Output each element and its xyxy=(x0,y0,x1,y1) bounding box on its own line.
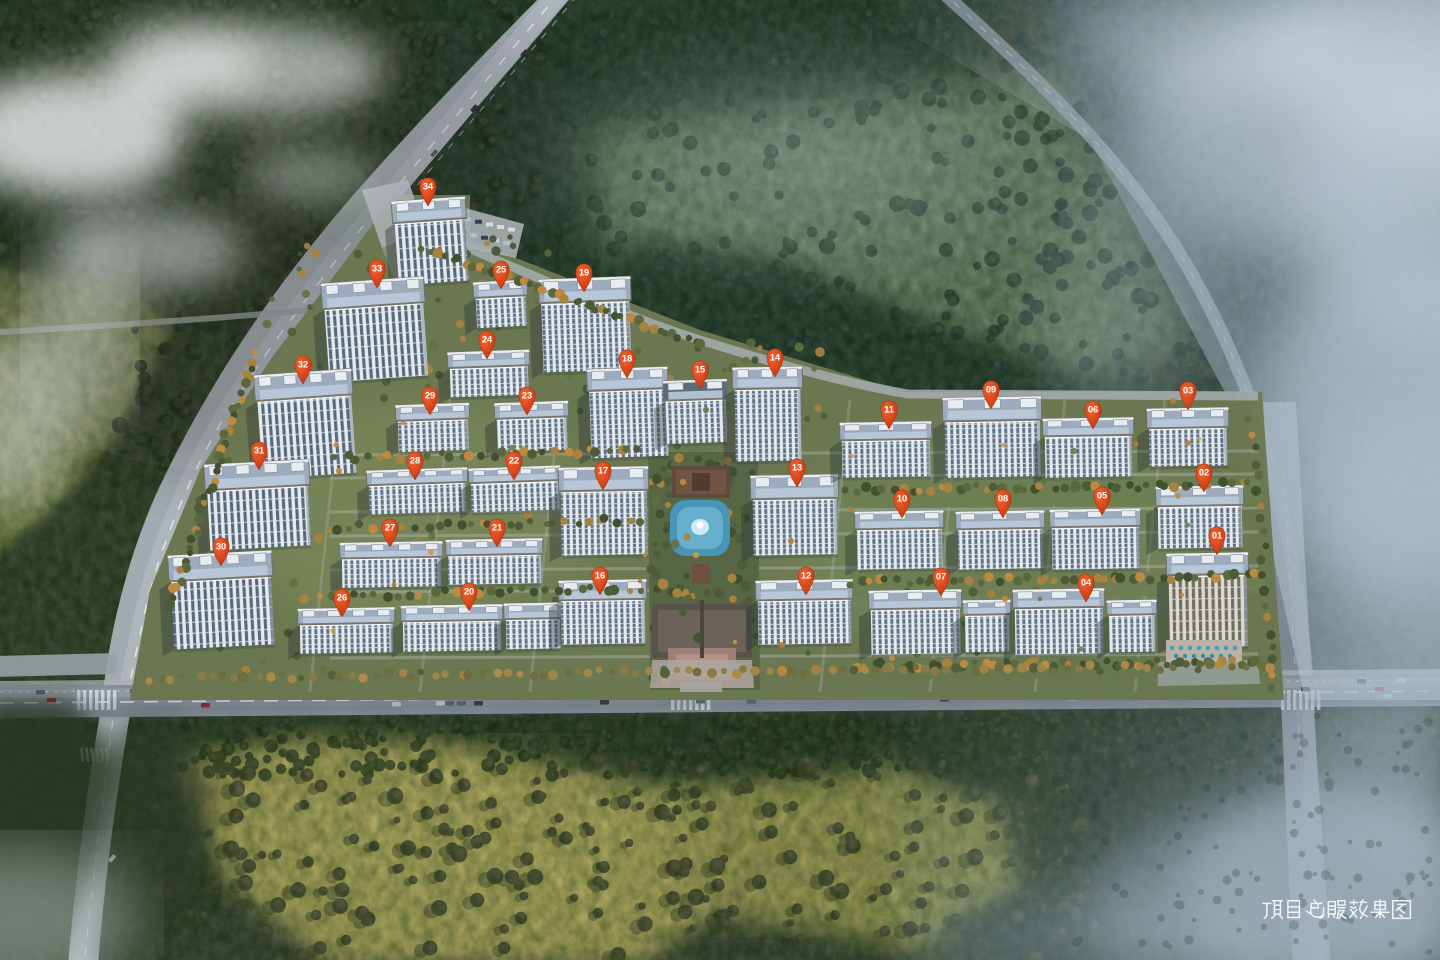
svg-text:06: 06 xyxy=(1088,404,1098,414)
svg-text:13: 13 xyxy=(792,462,802,472)
svg-text:01: 01 xyxy=(1212,530,1222,540)
svg-text:16: 16 xyxy=(595,570,605,580)
svg-text:09: 09 xyxy=(986,384,996,394)
svg-text:18: 18 xyxy=(622,353,632,363)
svg-text:05: 05 xyxy=(1097,490,1107,500)
svg-text:29: 29 xyxy=(425,390,435,400)
svg-text:24: 24 xyxy=(482,334,493,344)
svg-text:23: 23 xyxy=(522,390,532,400)
svg-text:28: 28 xyxy=(410,455,420,465)
svg-text:26: 26 xyxy=(337,592,347,602)
svg-text:14: 14 xyxy=(770,352,781,362)
svg-text:27: 27 xyxy=(385,522,395,532)
svg-text:17: 17 xyxy=(598,465,608,475)
svg-text:22: 22 xyxy=(509,455,519,465)
svg-text:32: 32 xyxy=(298,359,308,369)
svg-text:03: 03 xyxy=(1183,385,1193,395)
svg-text:07: 07 xyxy=(936,571,946,581)
svg-text:19: 19 xyxy=(579,267,589,277)
svg-text:21: 21 xyxy=(492,522,502,532)
svg-text:15: 15 xyxy=(695,364,705,374)
svg-text:31: 31 xyxy=(254,445,264,455)
svg-text:10: 10 xyxy=(897,493,907,503)
svg-text:08: 08 xyxy=(998,493,1008,503)
svg-text:34: 34 xyxy=(423,181,434,191)
svg-text:02: 02 xyxy=(1199,467,1209,477)
svg-text:33: 33 xyxy=(372,263,382,273)
svg-text:20: 20 xyxy=(464,586,474,596)
svg-text:12: 12 xyxy=(801,570,811,580)
svg-text:11: 11 xyxy=(884,404,894,414)
svg-text:30: 30 xyxy=(216,541,226,551)
svg-text:04: 04 xyxy=(1081,577,1092,587)
svg-text:25: 25 xyxy=(496,264,506,274)
